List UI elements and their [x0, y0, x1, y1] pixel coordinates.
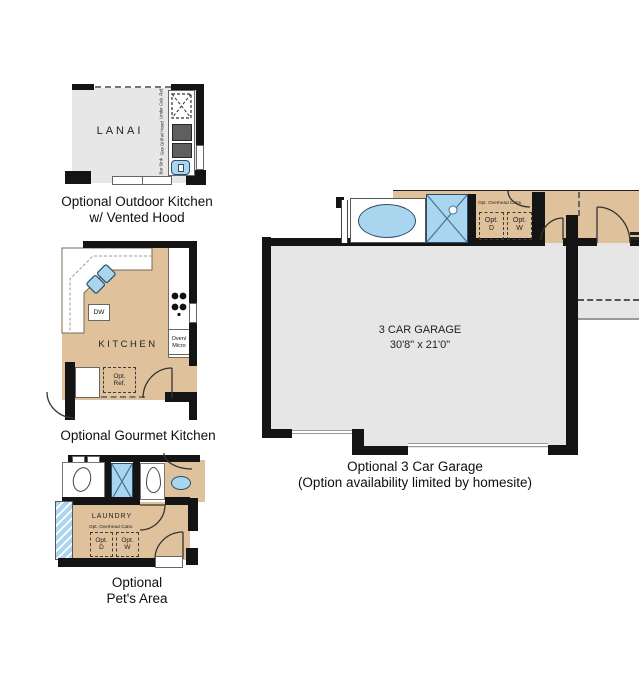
pets-laundry-door-arc	[140, 505, 165, 530]
garage-door-double	[408, 443, 548, 447]
garage-caption-line2: (Option availability limited by homesite…	[270, 475, 560, 491]
dishwasher-box: DW	[88, 304, 110, 321]
pets-right-wall-upper	[188, 498, 198, 531]
kitchen-room-label: KITCHEN	[93, 339, 163, 350]
garage-dryer-line2: D	[480, 225, 503, 233]
pets-shower	[111, 463, 133, 500]
bar-sink-label: Bar Sink	[160, 150, 165, 182]
garage-room-label-block: 3 CAR GARAGE 30'8" x 21'0"	[320, 323, 520, 353]
garage-optional-washer-box: Opt. W	[507, 212, 532, 240]
outdoor-kitchen-caption-line2: w/ Vented Hood	[27, 210, 247, 226]
laundry-room-label: LAUNDRY	[80, 513, 144, 520]
pets-wall-2	[133, 460, 140, 502]
side-room-floor	[578, 243, 639, 320]
garage-shower-x	[427, 195, 467, 242]
bathtub-icon	[358, 204, 416, 238]
side-room-edge	[578, 318, 639, 320]
garage-bottom-right-corner	[548, 445, 578, 455]
pets-washer-line2: W	[117, 544, 138, 551]
bar-sink-faucet	[178, 164, 184, 172]
gourmet-kitchen-caption-line: Optional Gourmet Kitchen	[28, 428, 248, 444]
lanai-right-window	[196, 145, 204, 170]
lanai-top-wall-left	[72, 84, 94, 90]
kitchen-right-window	[189, 303, 197, 323]
garage-room-label: 3 CAR GARAGE	[320, 323, 520, 338]
hall-door-arc-2	[597, 207, 630, 243]
door-jamb-mark-1	[630, 232, 639, 235]
pets-area-caption-line1: Optional	[57, 575, 217, 591]
pets-area-caption: Optional Pet's Area	[57, 575, 217, 607]
pets-mid-wall-left	[62, 497, 140, 505]
optional-ref-line1: Opt.	[104, 373, 135, 380]
lanai-screen-window-divider	[142, 177, 143, 184]
kitchen-entry-recess	[75, 367, 100, 398]
lanai-bottom-wall-left	[65, 171, 91, 184]
garage-door-single	[292, 430, 352, 434]
oven-micro-box: Oven/ Micro	[168, 329, 190, 355]
bath-laundry-divider-wall	[468, 194, 476, 243]
pets-entry-step	[155, 556, 183, 568]
cooktop-icon	[168, 288, 189, 318]
garage-plan: Opt. Overhead Cabs. Opt. D Opt. W 3 CAR …	[260, 185, 639, 460]
lanai-room-label: LANAI	[80, 125, 160, 137]
pets-lower-door-arc	[155, 532, 183, 559]
optional-ref-box: Opt. Ref.	[103, 367, 136, 393]
bar-sink-fixture	[171, 160, 190, 175]
pets-optional-washer-box: Opt. W	[116, 532, 139, 557]
outdoor-kitchen-caption: Optional Outdoor Kitchen w/ Vented Hood	[27, 194, 247, 226]
pets-area-plan: LAUNDRY Opt. Overhead Cabs. Opt. D Opt. …	[50, 452, 210, 574]
gourmet-kitchen-caption: Optional Gourmet Kitchen	[28, 428, 248, 444]
kitchen-left-door-arc	[47, 392, 75, 418]
garage-caption-line1: Optional 3 Car Garage	[270, 459, 560, 475]
garage-optional-dryer-box: Opt. D	[479, 212, 504, 240]
pets-bottom-wall	[58, 558, 158, 567]
hall-door-arc-1	[541, 218, 563, 240]
garage-dimensions: 30'8" x 21'0"	[320, 338, 520, 353]
floorplan-options-sheet: { "colors": { "wall": "#141414", "floor_…	[0, 0, 639, 678]
garage-washer-line2: W	[508, 225, 531, 233]
optional-ref-line2: Ref.	[104, 380, 135, 387]
gas-grill-upper	[172, 124, 192, 141]
pets-shower-x	[112, 464, 132, 499]
pets-mid-wall-right	[165, 497, 190, 505]
garage-shower	[426, 194, 468, 243]
laundry-nook-door-arc	[508, 191, 530, 207]
pets-washer-line1: Opt.	[117, 537, 138, 544]
dishwasher-label: DW	[94, 309, 105, 316]
oven-label-line2: Micro	[169, 343, 189, 350]
kitchen-right-door-arc	[143, 368, 172, 398]
garage-caption: Optional 3 Car Garage (Option availabili…	[270, 459, 560, 491]
under-cab-ref-box	[171, 93, 192, 119]
door-jamb-mark-2	[630, 237, 639, 240]
toilet-icon-2	[146, 467, 161, 493]
hall-dashed-wall	[578, 192, 580, 216]
pets-overhead-cabs-label: Opt. Overhead Cabs.	[89, 525, 133, 530]
pets-optional-dryer-box: Opt. D	[90, 532, 113, 557]
pets-dryer-line2: D	[91, 544, 112, 551]
pets-right-wall-lower	[186, 548, 198, 565]
outdoor-kitchen-plan: Under Cab. Ref. Gas Grill w/ Hood Bar Si…	[55, 83, 220, 193]
under-cab-ref-label: Under Cab. Ref.	[160, 87, 165, 119]
kitchen-right-wall-mid	[189, 323, 197, 366]
pet-shower-hatched	[55, 501, 73, 560]
side-room-dashed-line	[578, 299, 639, 301]
kitchen-right-wall-upper	[189, 241, 197, 303]
kitchen-top-wall	[83, 241, 197, 248]
oven-label-line1: Oven/	[169, 336, 189, 343]
pets-area-caption-line2: Pet's Area	[57, 591, 217, 607]
lanai-right-wall-upper	[196, 84, 204, 145]
garage-left-wall	[262, 237, 271, 438]
kitchen-bottom-dashed-boundary	[101, 396, 145, 398]
outdoor-kitchen-caption-line1: Optional Outdoor Kitchen	[27, 194, 247, 210]
pets-dryer-line1: Opt.	[91, 537, 112, 544]
pets-top-door-arc	[164, 453, 192, 469]
garage-bottom-left-corner	[262, 429, 292, 438]
gourmet-kitchen-plan: DW Oven/ Micro Opt. Ref. KITCHEN	[55, 240, 205, 430]
garage-washer-line1: Opt.	[508, 217, 531, 225]
garage-right-wall	[566, 215, 578, 455]
tub-window	[341, 200, 348, 243]
gas-grill-lower	[172, 143, 192, 158]
garage-dryer-line1: Opt.	[480, 217, 503, 225]
garage-step-wall-horizontal	[352, 446, 408, 455]
pets-vanity-sink	[171, 476, 191, 490]
